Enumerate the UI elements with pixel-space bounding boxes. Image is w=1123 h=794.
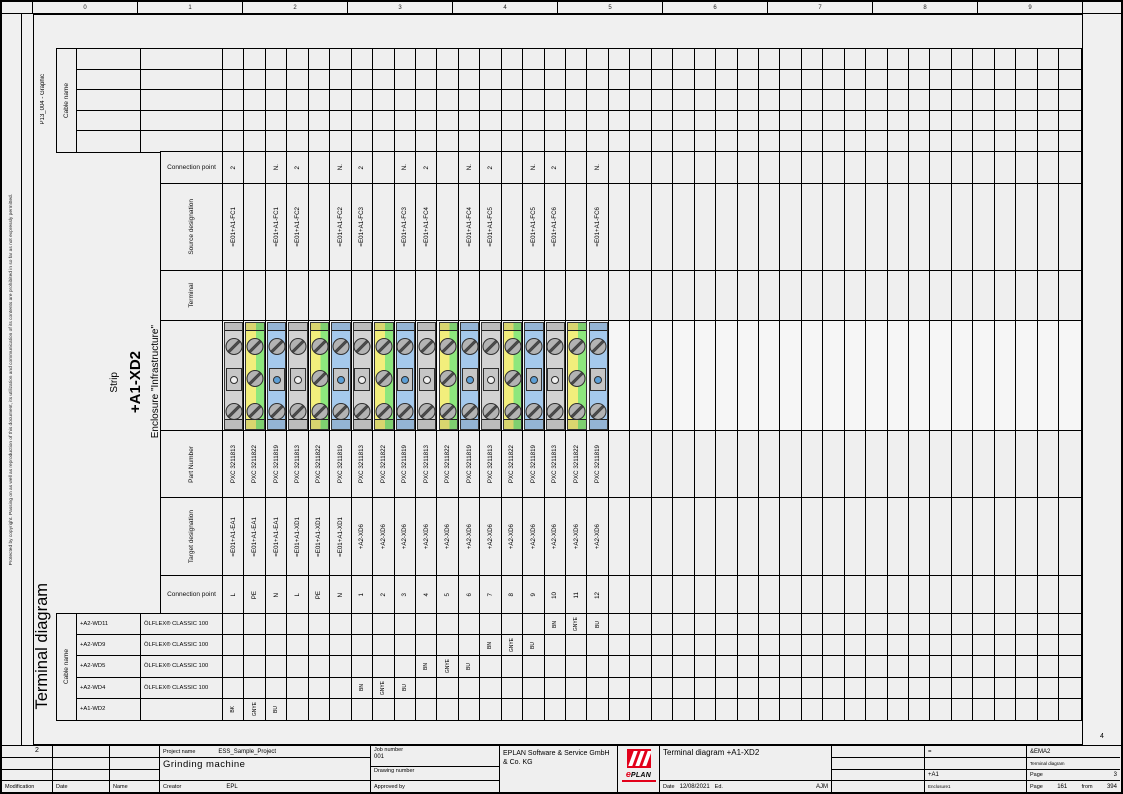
terminal-bottom-rail — [397, 419, 414, 429]
part-number-cell: PXC 3211813 — [287, 431, 308, 498]
wire-cell — [587, 635, 608, 656]
terminal-strip-cell — [909, 321, 930, 431]
clamp-middle — [483, 368, 499, 391]
grid-cell — [930, 70, 951, 91]
terminal-top-rail — [440, 323, 457, 331]
connection-point-bottom-value: PE — [315, 591, 322, 599]
connection-point-top-cell — [716, 152, 737, 184]
strip-name-text: +A1-XD2 — [127, 351, 144, 413]
grid-cell — [395, 111, 416, 132]
wire-cell — [780, 699, 801, 720]
grid-cell — [373, 70, 394, 91]
screw-bottom-icon — [354, 403, 371, 420]
terminal-12 — [460, 322, 479, 430]
screw-bottom-icon — [440, 403, 457, 420]
part-number-cell: PXC 3211819 — [330, 431, 351, 498]
target-designation-cell — [952, 498, 973, 576]
grid-cell — [437, 90, 458, 111]
wire-cell — [1038, 656, 1059, 677]
wire-cell — [266, 614, 287, 635]
wire-cell — [845, 614, 866, 635]
screw-top-icon — [461, 338, 478, 355]
doc-title-cell: Terminal diagram +A1-XD2 — [660, 746, 831, 781]
drawing-number-cell: Drawing number — [371, 767, 499, 781]
grid-cell — [823, 49, 844, 70]
wire-cell — [652, 678, 673, 699]
cable-name-cell: +A2-WD5 — [77, 656, 141, 677]
ruler-cell: 3 — [348, 2, 453, 13]
target-designation-cell — [1038, 498, 1059, 576]
terminal-bottom-rail — [289, 419, 306, 429]
ruler-cell: 8 — [873, 2, 978, 13]
grid-cell — [780, 111, 801, 132]
part-number-value: PXC 3211822 — [444, 445, 451, 483]
wire-cell — [952, 678, 973, 699]
part-number-cell: PXC 3211822 — [244, 431, 265, 498]
screw-top-icon — [268, 338, 285, 355]
wire-cell — [459, 699, 480, 720]
terminal-strip-cell — [866, 321, 887, 431]
part-number-value: PXC 3211822 — [380, 445, 387, 483]
ruler-number: 0 — [83, 5, 86, 11]
wire-cell — [437, 699, 458, 720]
target-designation-value: =E01+A1-XD1 — [337, 517, 344, 557]
wire-cell — [952, 656, 973, 677]
wire-cell — [930, 699, 951, 720]
fold-mark-right: 4 — [1100, 733, 1104, 740]
wire-cell — [566, 678, 587, 699]
terminal-cell — [545, 271, 566, 321]
revision-cell — [2, 758, 52, 770]
grid-cell — [352, 49, 373, 70]
wire-cell — [759, 635, 780, 656]
grid-cell — [416, 131, 437, 152]
terminal-top-rail — [246, 323, 263, 331]
target-designation-cell — [630, 498, 651, 576]
part-number-cell: PXC 3211813 — [545, 431, 566, 498]
wire-cell — [523, 656, 544, 677]
grid-cell — [287, 111, 308, 132]
target-designation-cell — [973, 498, 994, 576]
grid-cell — [802, 131, 823, 152]
name-label-cell: Name — [110, 781, 159, 792]
source-designation-cell — [780, 184, 801, 271]
target-designation-value: =E01+A1-XD1 — [294, 517, 301, 557]
wire-cell — [630, 699, 651, 720]
grid-cell — [695, 49, 716, 70]
part-number-cell: PXC 3211813 — [352, 431, 373, 498]
terminal-top-rail — [268, 323, 285, 331]
grid-cell — [1016, 90, 1037, 111]
terminal-bottom-rail — [504, 419, 521, 429]
terminal-strip-cell — [823, 321, 844, 431]
wire-cell — [802, 656, 823, 677]
wire-cell — [759, 656, 780, 677]
wire-cell — [780, 635, 801, 656]
wire-cell — [716, 678, 737, 699]
clamp-dot-icon — [230, 376, 238, 384]
grid-cell — [352, 90, 373, 111]
cable-type-cell — [141, 699, 223, 720]
grid-cell — [738, 70, 759, 91]
terminal-strip-cell — [930, 321, 951, 431]
grid-cell — [888, 90, 909, 111]
cable-type: ÖLFLEX® CLASSIC 100 — [144, 621, 208, 627]
target-designation-cell — [652, 498, 673, 576]
target-designation-cell: =E01+A1-XD1 — [287, 498, 308, 576]
terminal-cell — [845, 271, 866, 321]
grid-cell — [995, 111, 1016, 132]
wire-cell — [545, 656, 566, 677]
wire-cell — [759, 699, 780, 720]
grid-cell — [459, 111, 480, 132]
terminal-top-rail — [397, 323, 414, 331]
target-designation-cell: +A2-XD6 — [502, 498, 523, 576]
wire-cell — [1059, 699, 1080, 720]
terminal-7 — [353, 322, 372, 430]
grid-cell — [523, 111, 544, 132]
ruler-number: 8 — [923, 5, 926, 11]
grid-cell — [287, 90, 308, 111]
modification-label: Modification — [5, 784, 34, 790]
revision-cell — [110, 770, 159, 781]
screw-bottom-icon — [418, 403, 435, 420]
grid-cell — [480, 70, 501, 91]
wire-cell — [716, 699, 737, 720]
wire-cell — [716, 656, 737, 677]
clamp-dot-icon — [466, 376, 474, 384]
approved-by-cell: Approved by — [371, 781, 499, 792]
connection-point-bottom-cell — [673, 576, 694, 614]
part-number-cell — [759, 431, 780, 498]
connection-point-top-cell: N. — [395, 152, 416, 184]
wire-cell — [437, 635, 458, 656]
connection-point-top-cell: N. — [587, 152, 608, 184]
connection-point-bottom-value: N — [337, 593, 344, 597]
wire-cell — [309, 699, 330, 720]
location-desc: Enclosure1 — [928, 784, 951, 789]
approved-by-label: Approved by — [374, 784, 405, 790]
ruler-cell — [1083, 2, 1119, 13]
grid-cell — [223, 90, 244, 111]
grid-cell — [566, 131, 587, 152]
grid-cell — [673, 131, 694, 152]
grid-cell — [266, 131, 287, 152]
grid-cell — [738, 111, 759, 132]
terminal-strip-cell — [952, 321, 973, 431]
wire-cell — [309, 614, 330, 635]
grid-cell — [973, 90, 994, 111]
connection-point-bottom-cell: 1 — [352, 576, 373, 614]
wire-color-code: GNYE — [380, 681, 386, 695]
clamp-middle — [290, 368, 306, 391]
revision-cell — [832, 770, 924, 781]
terminal-top-rail — [482, 323, 499, 331]
wire-cell — [609, 635, 630, 656]
wire-cell — [1059, 614, 1080, 635]
grid-cell — [909, 131, 930, 152]
terminal-bottom-rail — [461, 419, 478, 429]
source-designation-cell — [995, 184, 1016, 271]
part-number-cell — [1059, 431, 1080, 498]
revision-cell — [110, 758, 159, 770]
source-designation-cell — [309, 184, 330, 271]
connection-point-bottom-cell — [845, 576, 866, 614]
grid-cell — [673, 90, 694, 111]
wire-cell — [352, 614, 373, 635]
part-number-value: PXC 3211813 — [551, 445, 558, 483]
wire-cell — [373, 635, 394, 656]
connection-point-top-cell: 2 — [545, 152, 566, 184]
wire-cell — [930, 656, 951, 677]
grid-cell — [995, 131, 1016, 152]
grid-cell — [909, 90, 930, 111]
wire-cell — [330, 656, 351, 677]
title-block: Modification Date Name Project name ESS_… — [2, 745, 1121, 792]
connection-point-top-cell — [759, 152, 780, 184]
clamp-middle — [226, 368, 242, 391]
fold-mark-left: 2 — [35, 747, 39, 754]
wire-cell — [416, 614, 437, 635]
revision-cell — [2, 746, 52, 758]
terminal-cell — [502, 271, 523, 321]
terminal-15 — [524, 322, 543, 430]
grid-cell — [459, 90, 480, 111]
terminal-13 — [481, 322, 500, 430]
revision-cell — [832, 758, 924, 770]
cable-type-cell — [141, 70, 223, 91]
screw-middle-icon — [568, 370, 585, 387]
connection-point-top-value: N. — [401, 164, 408, 170]
wire-cell — [373, 656, 394, 677]
connection-point-bottom-cell — [973, 576, 994, 614]
source-designation-cell: =E01+A1-FC6 — [587, 184, 608, 271]
terminal-strip-cell — [630, 321, 651, 431]
terminal-strip-cell — [695, 321, 716, 431]
connection-point-top-cell — [695, 152, 716, 184]
grid-cell — [823, 70, 844, 91]
wire-cell — [630, 635, 651, 656]
target-designation-cell — [1059, 498, 1080, 576]
connection-point-bottom-cell: 9 — [523, 576, 544, 614]
part-number-cell: PXC 3211822 — [309, 431, 330, 498]
grid-cell — [609, 70, 630, 91]
grid-cell — [930, 111, 951, 132]
part-number-value: PXC 3211819 — [337, 445, 344, 483]
source-designation-value: =E01+A1-FC1 — [230, 207, 237, 247]
wire-cell — [930, 635, 951, 656]
company-name: EPLAN Software & Service GmbH & Co. KG — [503, 749, 614, 767]
cable-name-cell: +A1-WD2 — [77, 699, 141, 720]
screw-bottom-icon — [590, 403, 607, 420]
source-designation-cell — [630, 184, 651, 271]
target-designation-cell: =E01+A1-EA1 — [223, 498, 244, 576]
revision-cell — [832, 781, 924, 792]
connection-point-top-cell — [845, 152, 866, 184]
wire-cell — [695, 678, 716, 699]
grid-cell — [1016, 70, 1037, 91]
grid-cell — [502, 70, 523, 91]
part-number-value: PXC 3211819 — [594, 445, 601, 483]
connection-point-top-cell — [909, 152, 930, 184]
target-designation-cell — [888, 498, 909, 576]
part-number-value: PXC 3211813 — [487, 445, 494, 483]
wire-cell — [244, 678, 265, 699]
grid-cell — [952, 70, 973, 91]
wire-cell — [373, 699, 394, 720]
screw-bottom-icon — [290, 403, 307, 420]
grid-cell — [373, 90, 394, 111]
connection-point-bottom-value: L — [230, 593, 237, 596]
page-value: 3 — [1114, 772, 1117, 778]
connection-point-bottom-value: L — [294, 593, 301, 596]
source-designation-cell: =E01+A1-FC3 — [352, 184, 373, 271]
wire-cell — [630, 656, 651, 677]
grid-cell — [652, 49, 673, 70]
wire-cell — [437, 614, 458, 635]
wire-cell — [823, 614, 844, 635]
wire-cell — [888, 699, 909, 720]
terminal-top-rail — [225, 323, 242, 331]
wire-cell — [695, 699, 716, 720]
terminal-top-rail — [311, 323, 328, 331]
grid-cell — [759, 90, 780, 111]
grid-cell — [866, 131, 887, 152]
part-number-cell — [695, 431, 716, 498]
grid-cell — [309, 90, 330, 111]
screw-bottom-icon — [375, 403, 392, 420]
grid-cell — [1059, 49, 1080, 70]
wire-cell — [909, 635, 930, 656]
grid-cell — [738, 49, 759, 70]
target-designation-cell — [1016, 498, 1037, 576]
wire-cell — [502, 678, 523, 699]
connection-point-top-cell — [502, 152, 523, 184]
grid-cell — [759, 49, 780, 70]
wire-cell — [1038, 678, 1059, 699]
wire-cell — [545, 635, 566, 656]
wire-cell — [695, 635, 716, 656]
wire-cell — [223, 678, 244, 699]
ruler-number: 7 — [818, 5, 821, 11]
grid-cell — [845, 70, 866, 91]
terminal-strip-cell — [888, 321, 909, 431]
wire-cell — [845, 699, 866, 720]
page-of-label: Page — [1030, 784, 1043, 790]
target-designation-value: +A2-XD6 — [423, 524, 430, 549]
part-number-row-label-cell: Part Number — [161, 431, 223, 498]
grid-cell — [416, 111, 437, 132]
revision-cell — [53, 770, 109, 781]
target-designation-value: =E01+A1-EA1 — [273, 517, 280, 557]
source-designation-cell — [652, 184, 673, 271]
wire-cell — [545, 699, 566, 720]
revision-date-column: Date — [53, 746, 110, 792]
eplan-logo-bar — [622, 780, 656, 782]
grid-cell — [309, 70, 330, 91]
clamp-dot-icon — [337, 376, 345, 384]
source-designation-cell — [244, 184, 265, 271]
wire-cell — [352, 635, 373, 656]
terminal-cell — [780, 271, 801, 321]
top-ruler: 0123456789 — [2, 2, 1121, 14]
grid-cell — [587, 131, 608, 152]
grid-cell — [609, 111, 630, 132]
part-number-cell — [995, 431, 1016, 498]
terminal-cell — [566, 271, 587, 321]
terminal-top-rail — [525, 323, 542, 331]
wire-cell — [630, 678, 651, 699]
source-designation-cell: =E01+A1-FC2 — [330, 184, 351, 271]
terminal-8 — [374, 322, 393, 430]
wire-cell — [480, 678, 501, 699]
grid-cell — [930, 131, 951, 152]
wire-color-code: BU — [402, 684, 408, 691]
grid-cell — [545, 131, 566, 152]
clamp-middle — [333, 368, 349, 391]
wire-cell — [973, 635, 994, 656]
source-designation-cell: =E01+A1-FC6 — [545, 184, 566, 271]
source-designation-cell: =E01+A1-FC4 — [459, 184, 480, 271]
grid-cell — [630, 131, 651, 152]
source-designation-value: =E01+A1-FC6 — [551, 207, 558, 247]
revision-cell — [53, 758, 109, 770]
ruler-cell: 2 — [243, 2, 348, 13]
grid-cell — [1016, 49, 1037, 70]
cable-name-label: Cable name — [63, 83, 70, 118]
terminal-cell — [373, 271, 394, 321]
wire-cell: BU — [587, 614, 608, 635]
part-number-cell — [973, 431, 994, 498]
copyright-text: Protected by copyright. Passing on as we… — [9, 194, 14, 565]
connection-point-bottom-value: 6 — [466, 593, 473, 596]
page-cell: Page 3 — [1027, 770, 1120, 781]
clamp-dot-icon — [594, 376, 602, 384]
wire-cell — [459, 614, 480, 635]
connection-point-bottom-cell — [802, 576, 823, 614]
wire-cell — [695, 614, 716, 635]
connection-point-bottom-value: 4 — [423, 593, 430, 596]
target-designation-cell — [823, 498, 844, 576]
ruler-number: 4 — [503, 5, 506, 11]
wire-cell — [930, 678, 951, 699]
part-number-value: PXC 3211813 — [294, 445, 301, 483]
terminal-cell — [223, 271, 244, 321]
revision-cell — [110, 746, 159, 758]
connection-point-bottom-value: 9 — [530, 593, 537, 596]
empty-cell — [925, 758, 1026, 770]
revision-extra-column — [832, 746, 925, 792]
eplan-logo-word: e PLAN — [626, 769, 651, 779]
company-column: EPLAN Software & Service GmbH & Co. KG — [500, 746, 618, 792]
grid-cell — [652, 70, 673, 91]
wire-cell — [652, 635, 673, 656]
wire-cell — [802, 678, 823, 699]
connection-point-top-value: 2 — [294, 166, 301, 169]
terminal-cell — [1038, 271, 1059, 321]
connection-point-top-cell — [866, 152, 887, 184]
grid-cell — [888, 49, 909, 70]
part-number-value: PXC 3211819 — [466, 445, 473, 483]
terminal-cell — [309, 271, 330, 321]
screw-bottom-icon — [526, 403, 543, 420]
wire-cell — [330, 614, 351, 635]
grid-cell — [652, 111, 673, 132]
source-designation-cell — [373, 184, 394, 271]
target-designation-value: +A2-XD6 — [530, 524, 537, 549]
part-number-cell — [845, 431, 866, 498]
grid-cell — [845, 131, 866, 152]
